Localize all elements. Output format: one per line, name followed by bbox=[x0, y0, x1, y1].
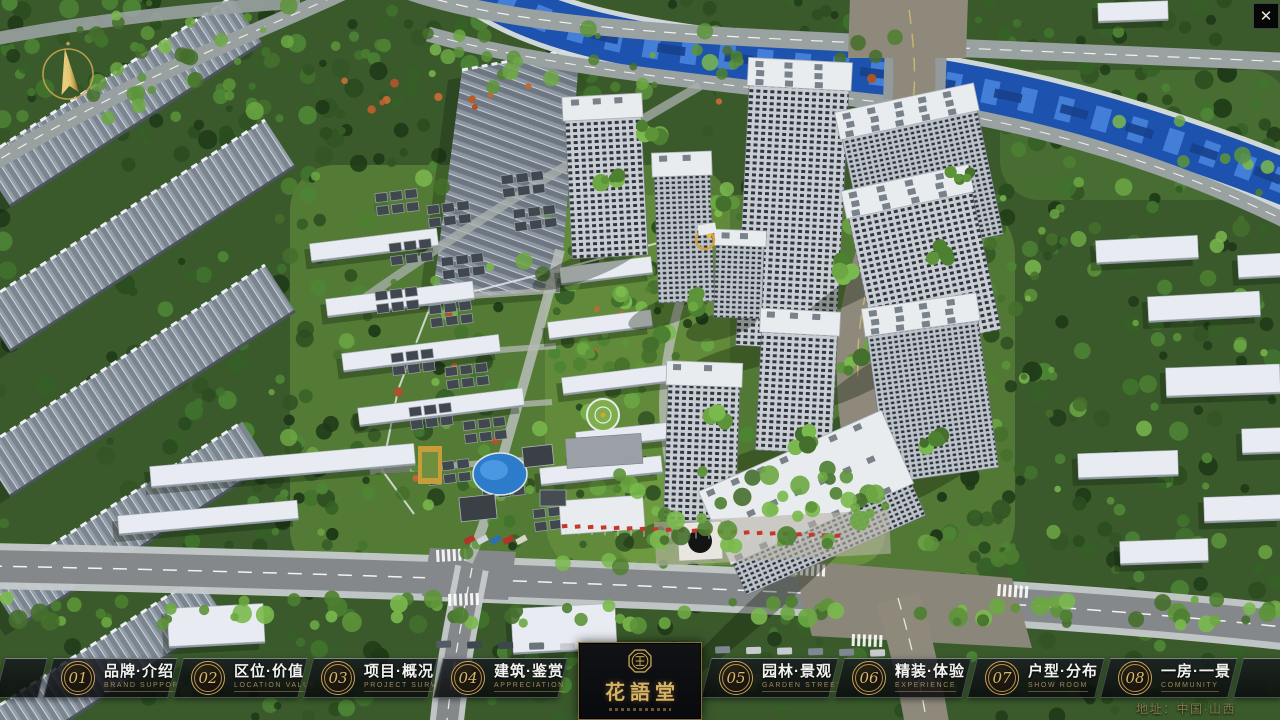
nav-item-floorplan[interactable]: 07 户型·分布 SHOW ROOM bbox=[972, 658, 1100, 698]
navbar-end-cap-right bbox=[1238, 658, 1280, 698]
nav-number-badge: 01 bbox=[61, 661, 95, 695]
nav-label-zh: 园林·景观 bbox=[762, 664, 842, 679]
nav-label-zh: 项目·概况 bbox=[364, 664, 450, 679]
seal-emblem-icon bbox=[627, 648, 653, 674]
logo-subtext-line bbox=[609, 708, 671, 711]
nav-item-views[interactable]: 08 一房·一景 COMMUNITY bbox=[1105, 658, 1233, 698]
navbar-end-cap-left bbox=[0, 658, 43, 698]
nav-item-garden[interactable]: 05 园林·景观 GARDEN STREET bbox=[706, 658, 834, 698]
nav-number-badge: 05 bbox=[719, 661, 753, 695]
nav-number-badge: 02 bbox=[191, 661, 225, 695]
nav-label-zh: 建筑·鉴赏 bbox=[494, 664, 565, 679]
nav-label-zh: 精装·体验 bbox=[895, 664, 965, 679]
close-button[interactable]: ✕ bbox=[1253, 3, 1279, 29]
nav-label-zh: 户型·分布 bbox=[1028, 664, 1098, 679]
nav-item-location[interactable]: 02 区位·价值 LOCATION VALUE bbox=[178, 658, 303, 698]
brand-title: 花語堂 bbox=[600, 676, 680, 705]
nav-label-en: GARDEN STREET bbox=[762, 682, 842, 692]
aerial-3d-scene[interactable] bbox=[0, 0, 1280, 720]
nav-number-badge: 04 bbox=[451, 661, 485, 695]
nav-item-brand[interactable]: 01 品牌·介绍 BRAND SUPPORT bbox=[48, 658, 173, 698]
nav-number-badge: 07 bbox=[985, 661, 1019, 695]
nav-number-badge: 08 bbox=[1118, 661, 1152, 695]
compass-icon[interactable] bbox=[36, 38, 100, 106]
nav-label-zh: 区位·价值 bbox=[234, 664, 316, 679]
nav-label-en: APPRECIATION bbox=[494, 682, 565, 692]
nav-item-project[interactable]: 03 项目·概况 PROJECT SURVEY bbox=[308, 658, 433, 698]
nav-number-badge: 03 bbox=[321, 661, 355, 695]
app-window: ✕ 01 品牌·介绍 BRAND SUPPORT 02 区位·价值 LOCATI… bbox=[0, 0, 1280, 720]
nav-label-zh: 品牌·介绍 bbox=[104, 664, 185, 679]
nav-item-architecture[interactable]: 04 建筑·鉴赏 APPRECIATION bbox=[438, 658, 563, 698]
nav-label-en: SHOW ROOM bbox=[1028, 682, 1088, 692]
nav-label-zh: 一房·一景 bbox=[1161, 664, 1231, 679]
logo-panel[interactable]: 花語堂 bbox=[578, 642, 702, 720]
nav-number-badge: 06 bbox=[852, 661, 886, 695]
nav-label-en: EXPERIENCE bbox=[895, 682, 956, 692]
project-address: 地址：中国·山西 bbox=[1136, 700, 1236, 717]
nav-item-interior[interactable]: 06 精装·体验 EXPERIENCE bbox=[839, 658, 967, 698]
nav-label-en: COMMUNITY bbox=[1161, 682, 1219, 692]
nav-label-en: BRAND SUPPORT bbox=[104, 682, 185, 692]
